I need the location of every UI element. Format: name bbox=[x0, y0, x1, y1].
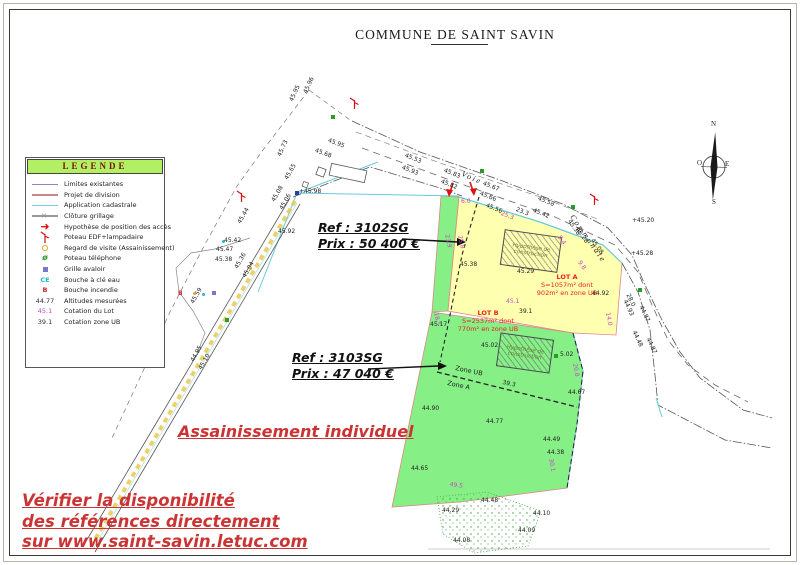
legend-symbol-line bbox=[30, 184, 60, 186]
regard-marker bbox=[193, 292, 196, 295]
legend-item-label: Grille avaloir bbox=[64, 265, 105, 273]
elevation-label: 44.65 bbox=[411, 466, 428, 472]
elevation-label: 44.10 bbox=[533, 511, 550, 517]
legend-item-label: Application cadastrale bbox=[64, 201, 136, 209]
legend-item: 44.77Altitudes mesurées bbox=[30, 296, 162, 307]
pole-marker bbox=[349, 97, 360, 110]
legend-item: Projet de division bbox=[30, 190, 162, 201]
cadastre-line bbox=[297, 193, 459, 196]
legend-symbol-square bbox=[30, 267, 60, 272]
lot-b-zone: 770m² en zone UB bbox=[443, 325, 533, 333]
lot-b-surface: S=2537m² dont bbox=[443, 317, 533, 325]
tel-marker bbox=[571, 205, 575, 209]
disclaimer-line: des références directement bbox=[22, 512, 308, 533]
elevation-label: 45.02 bbox=[481, 343, 498, 349]
ref-a-number: Ref : 3102SG bbox=[318, 220, 420, 236]
elevation-label: 5.02 bbox=[560, 352, 573, 358]
elevation-label: 44.92 bbox=[592, 291, 609, 297]
elevation-label: 44.49 bbox=[543, 437, 560, 443]
lot-a-surface: S=1057m² dont bbox=[527, 281, 607, 289]
legend-item: Regard de visite (Assainissement) bbox=[30, 243, 162, 254]
tel-marker bbox=[331, 115, 335, 119]
legend-symbol-line bbox=[30, 205, 60, 207]
dimension-label: 20.8 bbox=[571, 363, 579, 377]
elevation-label: 45.47 bbox=[216, 247, 233, 253]
legend-item-label: Hypothèse de position des accès bbox=[64, 223, 171, 231]
elevation-label: 39.1 bbox=[519, 309, 532, 315]
elevation-label: 45.92 bbox=[278, 229, 295, 235]
building bbox=[316, 167, 326, 177]
boundary-dashed bbox=[309, 90, 350, 120]
ref-a-block: Ref : 3102SG Prix : 50 400 € bbox=[318, 220, 420, 252]
legend-item-label: Bouche incendie bbox=[64, 286, 118, 294]
legend-item: Application cadastrale bbox=[30, 200, 162, 211]
legend-item: ×Clôture grillage bbox=[30, 211, 162, 222]
legend-item: 39.1Cotation zone UB bbox=[30, 317, 162, 328]
regard-marker bbox=[249, 267, 252, 270]
elevation-label: 44.90 bbox=[422, 406, 439, 412]
elevation-label: 44.67 bbox=[568, 390, 585, 396]
elevation-label: 44.48 bbox=[481, 498, 498, 504]
legend-item-label: Cotation du Lot bbox=[64, 307, 114, 315]
legend-symbol-circle bbox=[30, 245, 60, 251]
elevation-label: 45.38 bbox=[460, 262, 477, 268]
compass-letter: N bbox=[711, 121, 716, 127]
water-marker bbox=[222, 240, 225, 243]
lot-b-construction-area: Hypothèse de construction bbox=[496, 332, 554, 373]
legend-header: LEGENDE bbox=[27, 159, 163, 174]
legend-item-label: Clôture grillage bbox=[64, 212, 114, 220]
legend-item-label: Poteau EDF+lampadaire bbox=[64, 233, 143, 241]
tel-marker bbox=[554, 354, 558, 358]
compass-letter: S bbox=[712, 199, 716, 205]
ref-a-price: Prix : 50 400 € bbox=[318, 236, 420, 252]
availability-disclaimer: Vérifier la disponibilitédes références … bbox=[22, 491, 308, 553]
elevation-label: 44.29 bbox=[442, 508, 459, 514]
legend-item-label: Regard de visite (Assainissement) bbox=[64, 244, 175, 252]
legend-item-label: Cotation zone UB bbox=[64, 318, 120, 326]
legend-symbol-pole bbox=[30, 231, 60, 244]
elevation-label: 45.42 bbox=[224, 238, 241, 244]
elevation-label: 45.29 bbox=[517, 269, 534, 275]
elevation-label: 45.38 bbox=[215, 257, 232, 263]
ref-b-block: Ref : 3103SG Prix : 47 040 € bbox=[292, 350, 394, 382]
legend-item: Poteau EDF+lampadaire bbox=[30, 232, 162, 243]
dimension-label: 30.1 bbox=[547, 458, 555, 472]
legend-item-label: Projet de division bbox=[64, 191, 120, 199]
legend-symbol-fence: × bbox=[30, 215, 60, 217]
legend-item: Grille avaloir bbox=[30, 264, 162, 275]
tel-marker bbox=[480, 169, 484, 173]
tel-marker bbox=[638, 288, 642, 292]
road-lower-edge bbox=[622, 263, 772, 448]
ref-b-number: Ref : 3103SG bbox=[292, 350, 394, 366]
compass-letter: E bbox=[725, 161, 729, 167]
tel-marker bbox=[225, 318, 229, 322]
legend-item: BBouche incendie bbox=[30, 285, 162, 296]
construction-label: Hypothèse de construction bbox=[502, 241, 559, 261]
sanitation-note: Assainissement individuel bbox=[178, 422, 414, 441]
legend-item: øPoteau téléphone bbox=[30, 253, 162, 264]
construction-label: Hypothèse de construction bbox=[498, 343, 551, 362]
legend-item: Limites existantes bbox=[30, 179, 162, 190]
legend-item-label: Limites existantes bbox=[64, 180, 123, 188]
elevation-label: +45.20 bbox=[632, 218, 654, 224]
water-marker bbox=[202, 293, 205, 296]
legend-box: LEGENDE Limites existantesProjet de divi… bbox=[25, 157, 165, 368]
cadastre-corner-segment bbox=[656, 398, 662, 417]
compass-rose bbox=[700, 132, 728, 201]
building bbox=[329, 163, 367, 182]
cadastral-plan-page: COMMUNE DE SAINT SAVIN bbox=[0, 0, 800, 565]
legend-items: Limites existantesProjet de divisionAppl… bbox=[26, 175, 164, 327]
ref-b-price: Prix : 47 040 € bbox=[292, 366, 394, 382]
grille-marker bbox=[212, 291, 216, 295]
pole-marker bbox=[236, 190, 247, 203]
disclaimer-line: Vérifier la disponibilité bbox=[22, 491, 308, 512]
elevation-label: 44.77 bbox=[486, 419, 503, 425]
legend-item: 45.1Cotation du Lot bbox=[30, 306, 162, 317]
hydrant-marker: B bbox=[178, 292, 183, 296]
elevation-label: 44.09 bbox=[518, 528, 535, 534]
bluedot-marker bbox=[295, 191, 299, 195]
elevation-label: +45.28 bbox=[631, 251, 653, 257]
elevation-label: +45.98 bbox=[299, 189, 321, 195]
legend-item-label: Altitudes mesurées bbox=[64, 297, 127, 305]
legend-symbol-line bbox=[30, 194, 60, 196]
building bbox=[302, 181, 308, 187]
legend-item: CEBouche à clé eau bbox=[30, 274, 162, 285]
disclaimer-line: sur www.saint-savin.letuc.com bbox=[22, 532, 308, 553]
compass-letter: O bbox=[697, 160, 702, 166]
elevation-label: 44.38 bbox=[547, 450, 564, 456]
dimension-label: 6.0 bbox=[461, 199, 471, 205]
lot-a-name: LOT A bbox=[527, 273, 607, 281]
dimension-label: 45.1 bbox=[506, 299, 519, 305]
dimension-label: 14.0 bbox=[604, 312, 612, 326]
legend-item-label: Poteau téléphone bbox=[64, 254, 121, 262]
pole-marker bbox=[589, 193, 600, 206]
legend-item-label: Bouche à clé eau bbox=[64, 276, 120, 284]
elevation-label: 44.08 bbox=[453, 538, 470, 544]
